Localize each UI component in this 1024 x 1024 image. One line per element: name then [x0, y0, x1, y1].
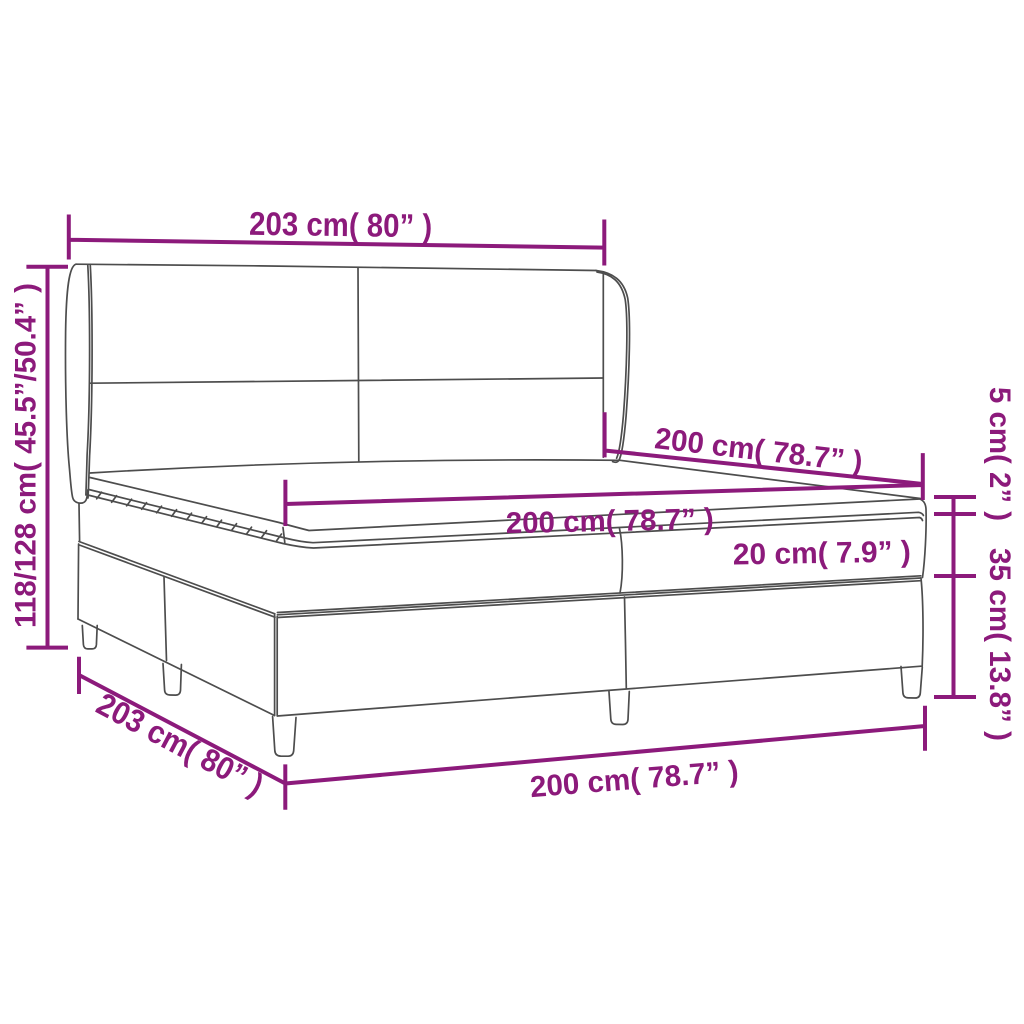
svg-text:200 cm( 78.7” ): 200 cm( 78.7” ): [529, 755, 740, 804]
svg-text:5 cm( 2” ): 5 cm( 2” ): [983, 387, 1016, 521]
svg-text:118/128 cm( 45.5”/50.4” ): 118/128 cm( 45.5”/50.4” ): [10, 283, 43, 628]
svg-text:203 cm( 80” ): 203 cm( 80” ): [91, 686, 270, 803]
svg-text:200 cm( 78.7” ): 200 cm( 78.7” ): [505, 503, 714, 540]
svg-text:35 cm( 13.8” ): 35 cm( 13.8” ): [983, 548, 1016, 741]
svg-text:20 cm( 7.9” ): 20 cm( 7.9” ): [733, 535, 912, 571]
svg-text:200 cm( 78.7” ): 200 cm( 78.7” ): [653, 422, 864, 479]
svg-text:203 cm( 80” ): 203 cm( 80” ): [249, 205, 432, 245]
